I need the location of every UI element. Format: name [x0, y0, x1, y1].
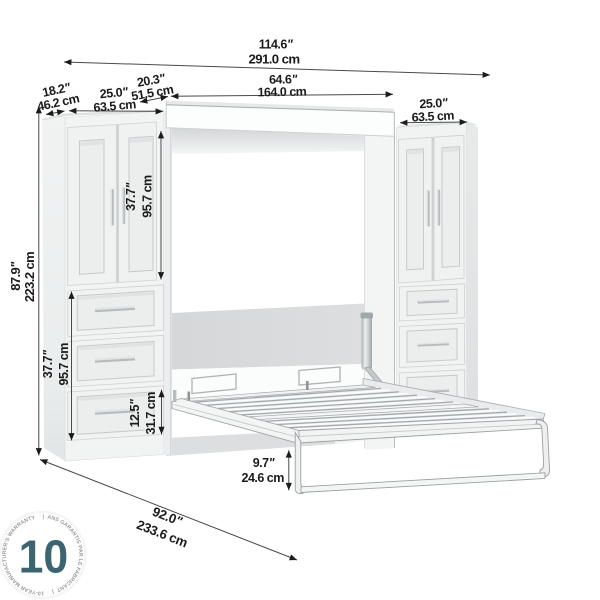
svg-text:9.7": 9.7" — [253, 456, 276, 470]
svg-text:164.0 cm: 164.0 cm — [257, 85, 306, 100]
svg-text:37.7": 37.7" — [124, 182, 138, 211]
svg-text:24.6 cm: 24.6 cm — [242, 471, 285, 485]
svg-text:63.5 cm: 63.5 cm — [411, 108, 454, 124]
svg-text:37.7": 37.7" — [41, 349, 55, 378]
svg-text:10: 10 — [19, 531, 69, 583]
svg-text:291.0 cm: 291.0 cm — [249, 52, 300, 67]
svg-text:223.2 cm: 223.2 cm — [22, 252, 37, 302]
svg-text:95.7 cm: 95.7 cm — [57, 343, 71, 386]
svg-text:12.5": 12.5" — [128, 398, 142, 427]
svg-text:95.7 cm: 95.7 cm — [140, 175, 154, 218]
svg-text:31.7 cm: 31.7 cm — [144, 392, 158, 435]
svg-text:87.9": 87.9" — [8, 261, 23, 291]
svg-text:114.6": 114.6" — [259, 38, 294, 52]
